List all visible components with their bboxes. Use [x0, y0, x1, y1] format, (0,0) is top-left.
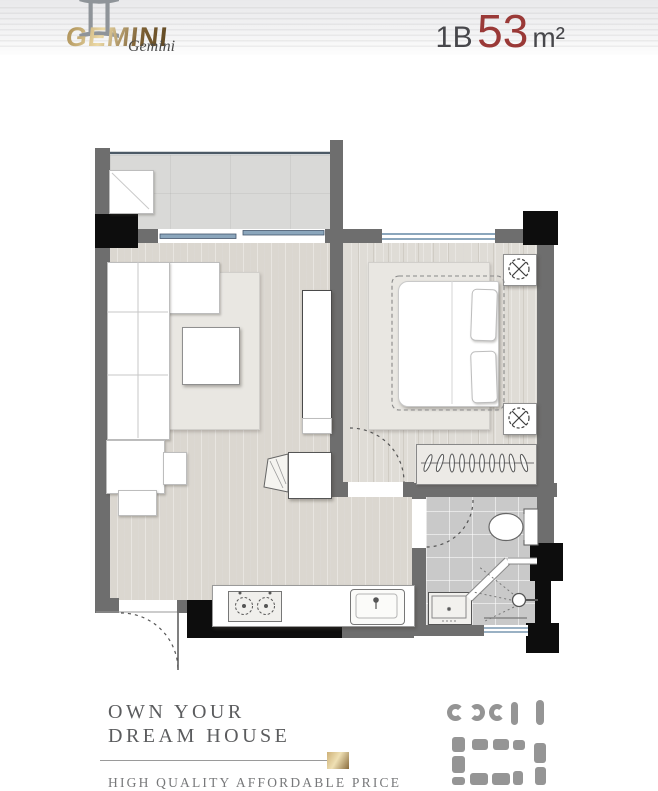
wall-right [537, 243, 554, 545]
floor-plan [0, 0, 658, 785]
column-right-strip [535, 581, 551, 625]
pillow [470, 289, 498, 342]
watermark-dash [470, 773, 488, 785]
wall-shelf-box [302, 418, 332, 434]
ac-unit [109, 170, 154, 214]
footer-tagline: HIGH QUALITY AFFORDABLE PRICE [108, 775, 401, 791]
tv-console [302, 290, 332, 429]
armchair-side [163, 452, 187, 485]
armchair-main [106, 440, 165, 494]
wardrobe [416, 444, 537, 485]
nightstand-bottom [503, 403, 537, 435]
bedroom-window-opening [382, 231, 495, 243]
pillow [470, 351, 498, 404]
balcony-sliding-door-opening [158, 229, 325, 243]
column-right-middle [530, 543, 563, 581]
wall-bottom-left-stub [95, 598, 119, 613]
gold-accent-square [327, 752, 349, 769]
kitchen-sink [350, 589, 405, 625]
nightstand-top [503, 254, 537, 286]
watermark-dash [513, 771, 523, 785]
watermark-dash [493, 739, 509, 750]
watermark-dash [513, 740, 525, 750]
wall-top-right [495, 229, 525, 243]
column-bottom-right [526, 623, 559, 653]
armchair-foot [118, 490, 157, 516]
sofa-left-section [107, 262, 170, 440]
watermark-glyph [469, 704, 485, 721]
watermark-dash [535, 767, 546, 785]
desk [288, 452, 332, 499]
watermark-glyph [511, 702, 518, 725]
column-top-left [95, 214, 138, 248]
wall-bedroom-south-east [412, 483, 557, 497]
watermark-pattern [440, 695, 570, 785]
watermark-glyph [489, 704, 505, 721]
entrance-door-swing-icon [96, 612, 178, 670]
footer-divider [100, 760, 346, 761]
bedroom-door-opening [348, 482, 403, 497]
bathroom-vanity [428, 592, 472, 625]
coffee-table [182, 327, 240, 385]
headline-line2: DREAM HOUSE [108, 724, 290, 748]
watermark-dash [534, 743, 546, 763]
watermark-glyph [447, 704, 464, 721]
watermark-dash [452, 737, 465, 752]
watermark-dash [472, 739, 488, 750]
footer-headline: OWN YOUR DREAM HOUSE [108, 700, 290, 748]
watermark-dash [452, 777, 465, 785]
headline-line1: OWN YOUR [108, 700, 290, 724]
bathroom-door-opening [412, 499, 426, 548]
watermark-dash [492, 773, 510, 785]
wall-bathroom-bottom [412, 625, 484, 636]
stove-hob [228, 591, 282, 622]
wall-balcony-right [330, 140, 343, 245]
column-top-right [523, 211, 558, 245]
watermark-dash [452, 756, 465, 773]
bathroom-window-opening [484, 625, 528, 636]
watermark-glyph [536, 700, 544, 725]
